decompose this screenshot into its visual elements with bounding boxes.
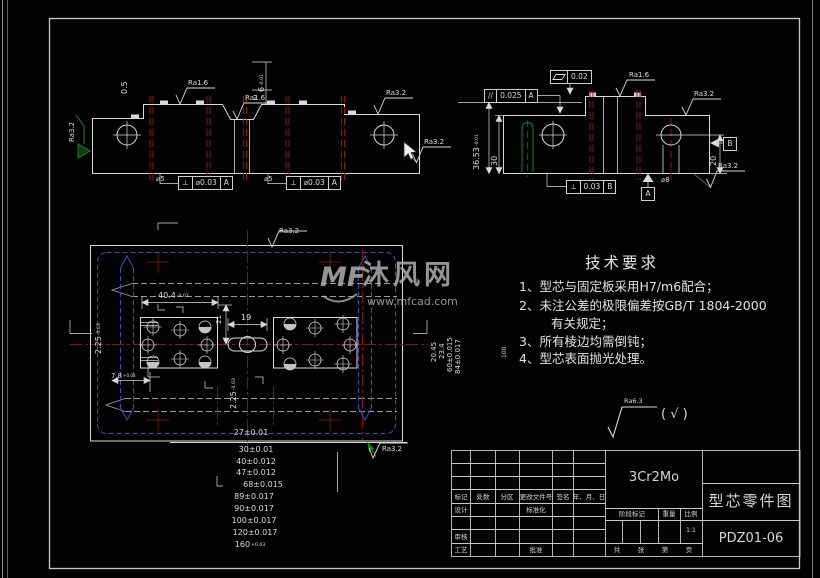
dim-21: 21 (216, 315, 223, 324)
title-block-label: 分区 (501, 494, 514, 501)
watermark-url: www.mfcad.com (367, 296, 458, 307)
dim-19: 19 (241, 314, 251, 322)
tech-req-title: 技术要求 (585, 255, 659, 273)
title-block-label: 标记 (455, 494, 468, 501)
finish-note-roughness-icon (608, 407, 657, 437)
title-block-label: 共 (614, 547, 621, 554)
gdt-datum-ref: B (603, 181, 615, 193)
hole-symbols (139, 315, 359, 373)
perpendicularity-icon: ⊥ (567, 181, 580, 193)
part-title: 型芯零件图 (708, 494, 793, 509)
dim-23-4: 23.4 (439, 343, 446, 359)
dim-40-stack: 40±0.012 (236, 458, 276, 466)
title-block-label: 处数 (477, 494, 490, 501)
ra-3-2-label: Ra3.2 (279, 228, 299, 235)
gdt-datum-ref: A (220, 177, 232, 189)
ra-3-2-label: Ra3.2 (718, 163, 738, 170)
gdt-value: 0.02 (567, 71, 591, 83)
ra-1-6-label: Ra1.6 (188, 80, 208, 87)
dim-40-4: 40.4-0.02 (158, 292, 189, 300)
dim-100-stack: 100±0.017 (232, 517, 277, 525)
finish-note-ra: Ra6.3 (624, 398, 643, 405)
dim-dia8: ⌀8 (661, 177, 670, 184)
gdt-frame-perpendicularity: ⊥⌀0.03A (286, 176, 341, 190)
tech-req-item: 1、型芯与固定板采用H7/m6配合； (519, 280, 719, 294)
parallelism-icon: // (485, 90, 496, 102)
dim-2-25: 2.25-0.03 (230, 378, 238, 409)
ra-1-6-label: Ra1.6 (629, 72, 649, 79)
gdt-frame-perpendicularity: ⊥⌀0.03A (178, 176, 233, 190)
gdt-frame-parallelism: //0.025A (484, 89, 538, 103)
title-block-label: 阶段标记 (619, 511, 645, 518)
datum-label-a: A (641, 187, 655, 201)
title-block-label: 批准 (530, 547, 543, 554)
watermark-name: 沐风网 (362, 262, 455, 289)
datum-triangles (643, 139, 720, 183)
dimension-stack (170, 441, 408, 492)
watermark-logo: MF (320, 264, 365, 291)
flatness-icon (551, 71, 567, 83)
dim-100-side: 100 (502, 347, 508, 358)
gdt-value: ⌀0.03 (300, 177, 328, 189)
title-block-label: 比例 (685, 511, 698, 518)
surface-roughness-icon (76, 115, 90, 158)
tech-req-item: 2、未注公差的极限偏差按GB/T 1804-2000 (519, 299, 767, 313)
dim-30: 30 (491, 156, 499, 166)
dim-160-stack: 160+0.03 (235, 541, 265, 549)
scale-value: 1:1 (686, 528, 696, 534)
ra-3-2-label: Ra3.2 (382, 446, 402, 453)
ra-3-2-label: Ra3.2 (386, 90, 406, 97)
perpendicularity-icon: ⊥ (287, 177, 300, 189)
finish-note-others: ( √ ) (661, 408, 688, 421)
dim-7-8: 7.8+0.03 (111, 373, 136, 380)
dim-120-stack: 120±0.017 (233, 529, 278, 537)
title-block-label: 页 (686, 547, 693, 554)
plan-view (70, 223, 428, 452)
title-block-label: 设计 (455, 507, 468, 514)
title-block-label: 工艺 (455, 547, 468, 554)
title-block-label: 张 (638, 547, 645, 554)
dim-27: 27±0.01 (234, 429, 269, 437)
ra-3-2-label: Ra3.2 (424, 139, 444, 146)
title-block-label: 签名 (557, 494, 570, 501)
watermark-swoosh (323, 294, 357, 302)
gdt-datum-ref: A (525, 90, 537, 102)
gdt-value: ⌀0.03 (192, 177, 220, 189)
gdt-datum-ref: A (328, 177, 340, 189)
gdt-value: 0.025 (496, 90, 524, 102)
title-block-label: 重量 (663, 511, 676, 518)
dim-dia5: ⌀5 (264, 176, 273, 183)
title-block-label: 标准化 (526, 507, 546, 514)
title-block-label: 审核 (455, 534, 468, 541)
dim-47-stack: 47±0.012 (236, 469, 276, 477)
dim-2: 2 (253, 95, 257, 102)
tech-req-item: 有关规定； (551, 317, 614, 331)
dim-2-25: 2.25-0.03 (95, 323, 103, 354)
perpendicularity-icon: ⊥ (179, 177, 192, 189)
dim-20: 20 (710, 156, 718, 166)
title-block-label: 年、月、日 (573, 494, 606, 501)
dim-89-stack: 89±0.017 (234, 493, 274, 501)
drawing-number: PDZ01-06 (719, 532, 784, 545)
dim-6: 6-0.01 (258, 74, 266, 92)
mouse-cursor (404, 142, 416, 159)
dim-84: 84±0.017 (455, 339, 462, 374)
material-label: 3Cr2Mo (629, 471, 679, 484)
dim-68-stack: 68±0.015 (243, 481, 283, 489)
tech-req-item: 4、型芯表面抛光处理。 (519, 352, 652, 366)
dim-dia5: ⌀5 (156, 176, 165, 183)
dim-60: 60±0.015 (447, 337, 454, 372)
dim-90-stack: 90±0.017 (234, 505, 274, 513)
ra-3-2-label: Ra3.2 (694, 91, 714, 98)
title-block-label: 更改文件号 (520, 494, 553, 501)
datum-label-b: B (723, 137, 737, 151)
dim-36-53: 36.53-0.01 (473, 134, 481, 170)
ra-3-2-label: Ra3.2 (69, 122, 76, 142)
gdt-value: 0.03 (580, 181, 604, 193)
cad-drawing-canvas: 0.5Ra1.6Ra1.6Ra3.2Ra3.2Ra3.26-0.012⌀5⌀53… (0, 0, 820, 578)
gdt-frame-flatness: 0.02 (550, 70, 592, 84)
tech-req-item: 3、所有棱边均需倒钝； (519, 335, 652, 349)
gdt-frame-perpendicularity: ⊥0.03B (566, 180, 616, 194)
dim-20-45: 20.45 (431, 342, 438, 362)
title-block-label: 第 (662, 547, 669, 554)
dim-0-5: 0.5 (121, 81, 129, 94)
dim-30-stack: 30±0.01 (239, 446, 274, 454)
